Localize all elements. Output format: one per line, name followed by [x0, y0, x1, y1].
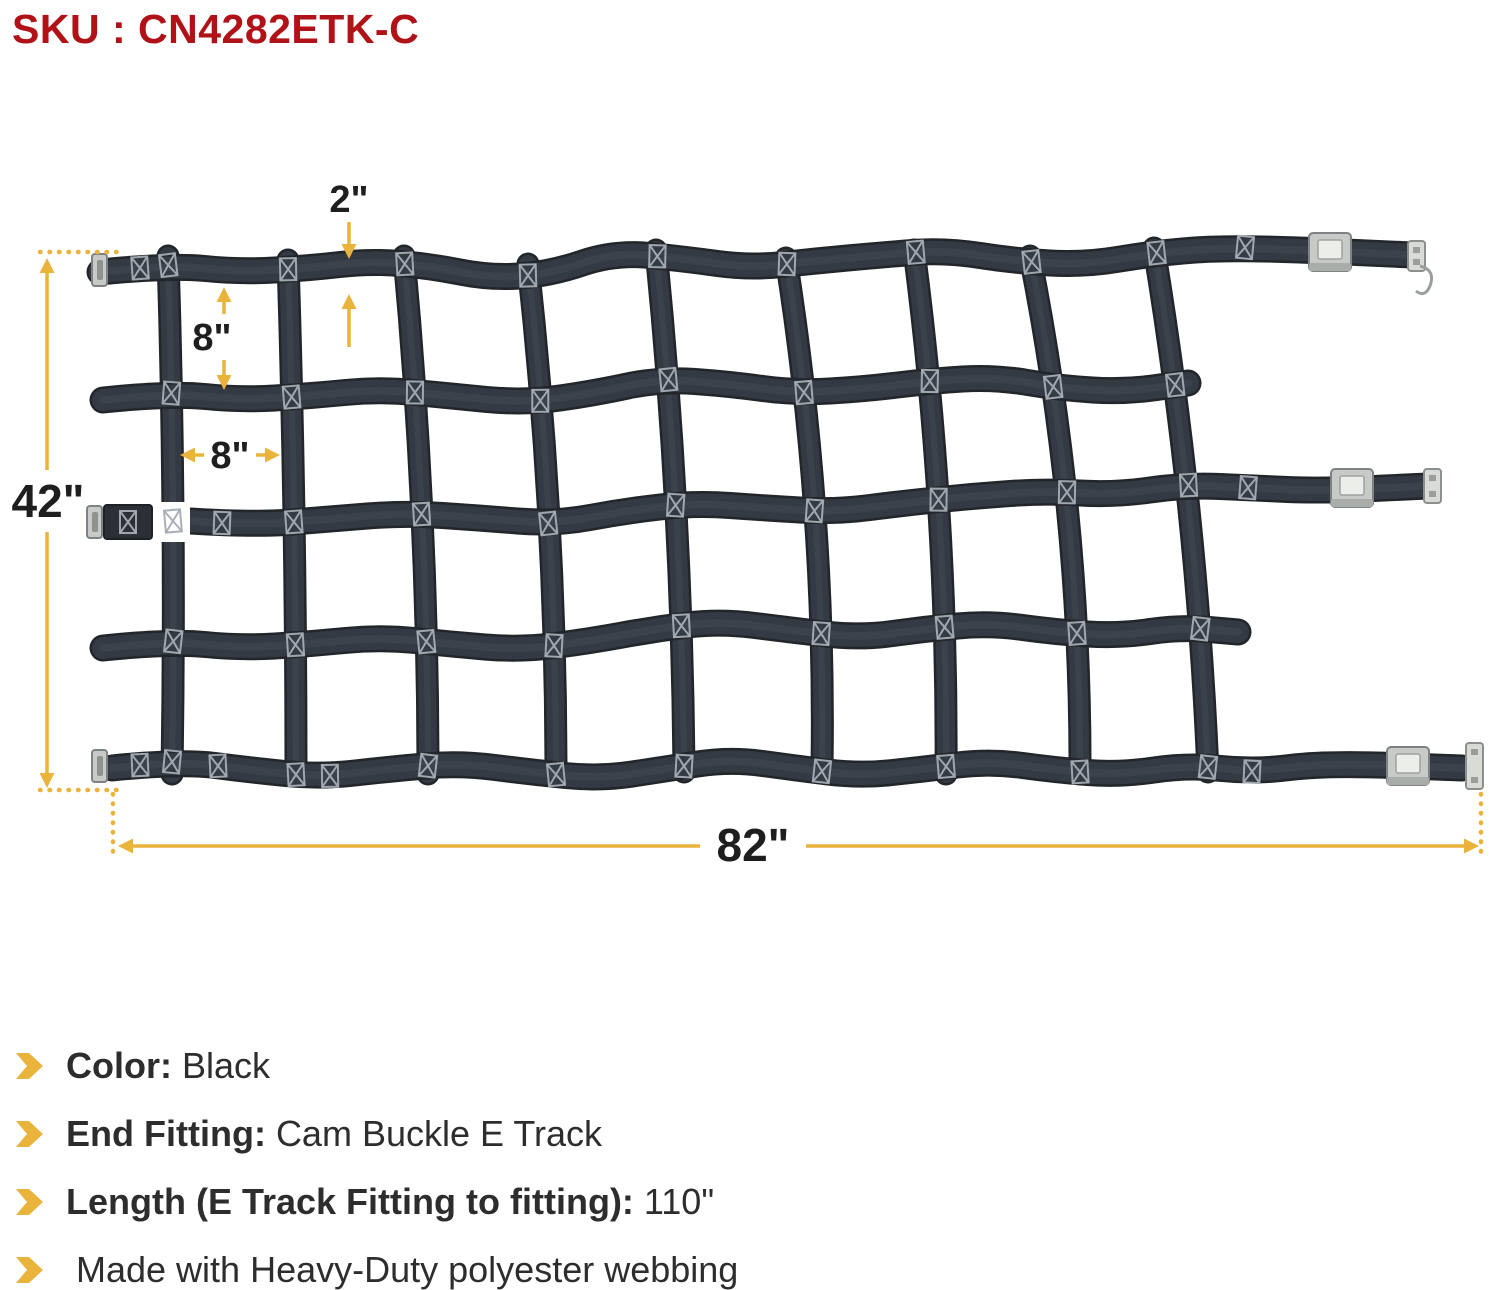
spec-list: Color: Black End Fitting: Cam Buckle E T… — [14, 1032, 1474, 1290]
chevron-bullet-icon — [14, 1257, 44, 1283]
spec-label: Color: — [66, 1045, 172, 1087]
spec-length: Length (E Track Fitting to fitting): 110… — [14, 1168, 1474, 1236]
chevron-bullet-icon — [14, 1053, 44, 1079]
spec-value: Black — [182, 1045, 270, 1087]
dim-net-width-label: 82" — [717, 819, 790, 871]
chevron-bullet-icon — [14, 1189, 44, 1215]
dim-strap-width-label: 2" — [329, 179, 368, 221]
spec-value: Cam Buckle E Track — [276, 1113, 602, 1155]
spec-value: Made with Heavy-Duty polyester webbing — [76, 1249, 738, 1290]
spec-label: End Fitting: — [66, 1113, 266, 1155]
dim-cell-height-label: 8" — [192, 317, 231, 359]
dim-net-height-label: 42" — [12, 475, 85, 527]
dim-cell-width-label: 8" — [210, 435, 249, 477]
chevron-bullet-icon — [14, 1121, 44, 1147]
spec-value: 110" — [644, 1181, 714, 1223]
spec-material: Made with Heavy-Duty polyester webbing — [14, 1236, 1474, 1290]
spec-label: Length (E Track Fitting to fitting): — [66, 1181, 634, 1223]
cargo-net-diagram: 2" 8" 8" 42" 82" — [0, 0, 1500, 900]
spec-color: Color: Black — [14, 1032, 1474, 1100]
product-dimension-image: SKU : CN4282ETK-C 2" 8" 8" 42" 82" Color… — [0, 0, 1500, 1290]
spec-end-fitting: End Fitting: Cam Buckle E Track — [14, 1100, 1474, 1168]
